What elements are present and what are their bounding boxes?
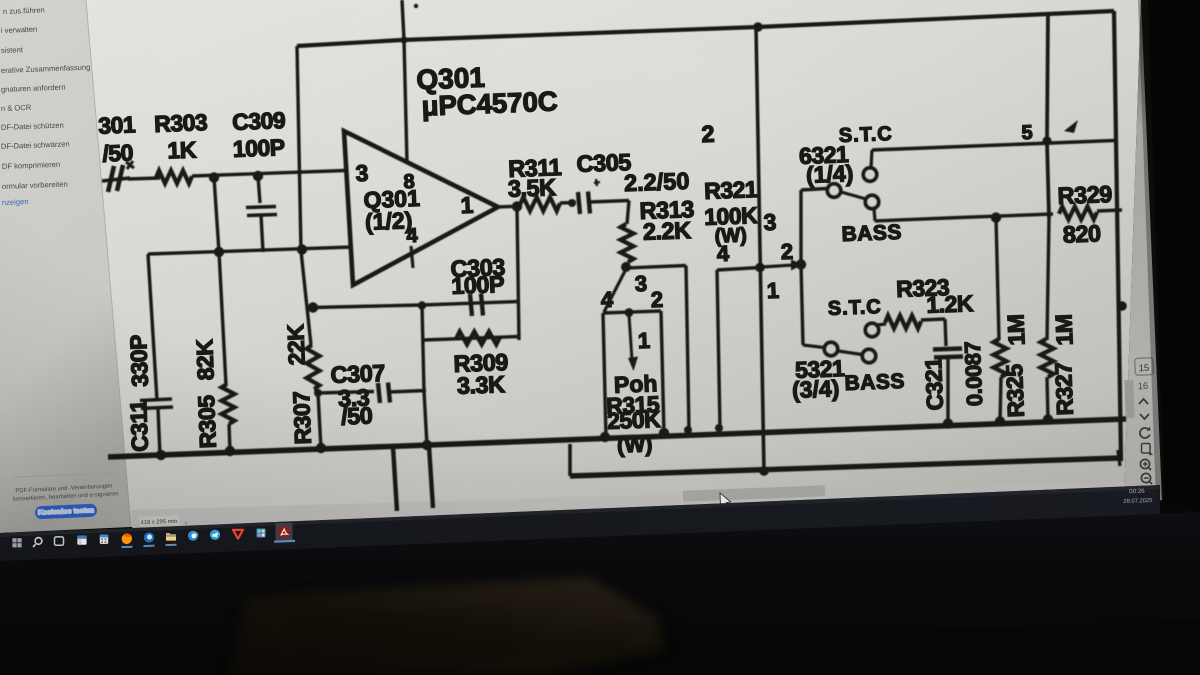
svg-text:28.07.2025: 28.07.2025 [1123,498,1152,505]
svg-text:00:26: 00:26 [1129,488,1145,496]
